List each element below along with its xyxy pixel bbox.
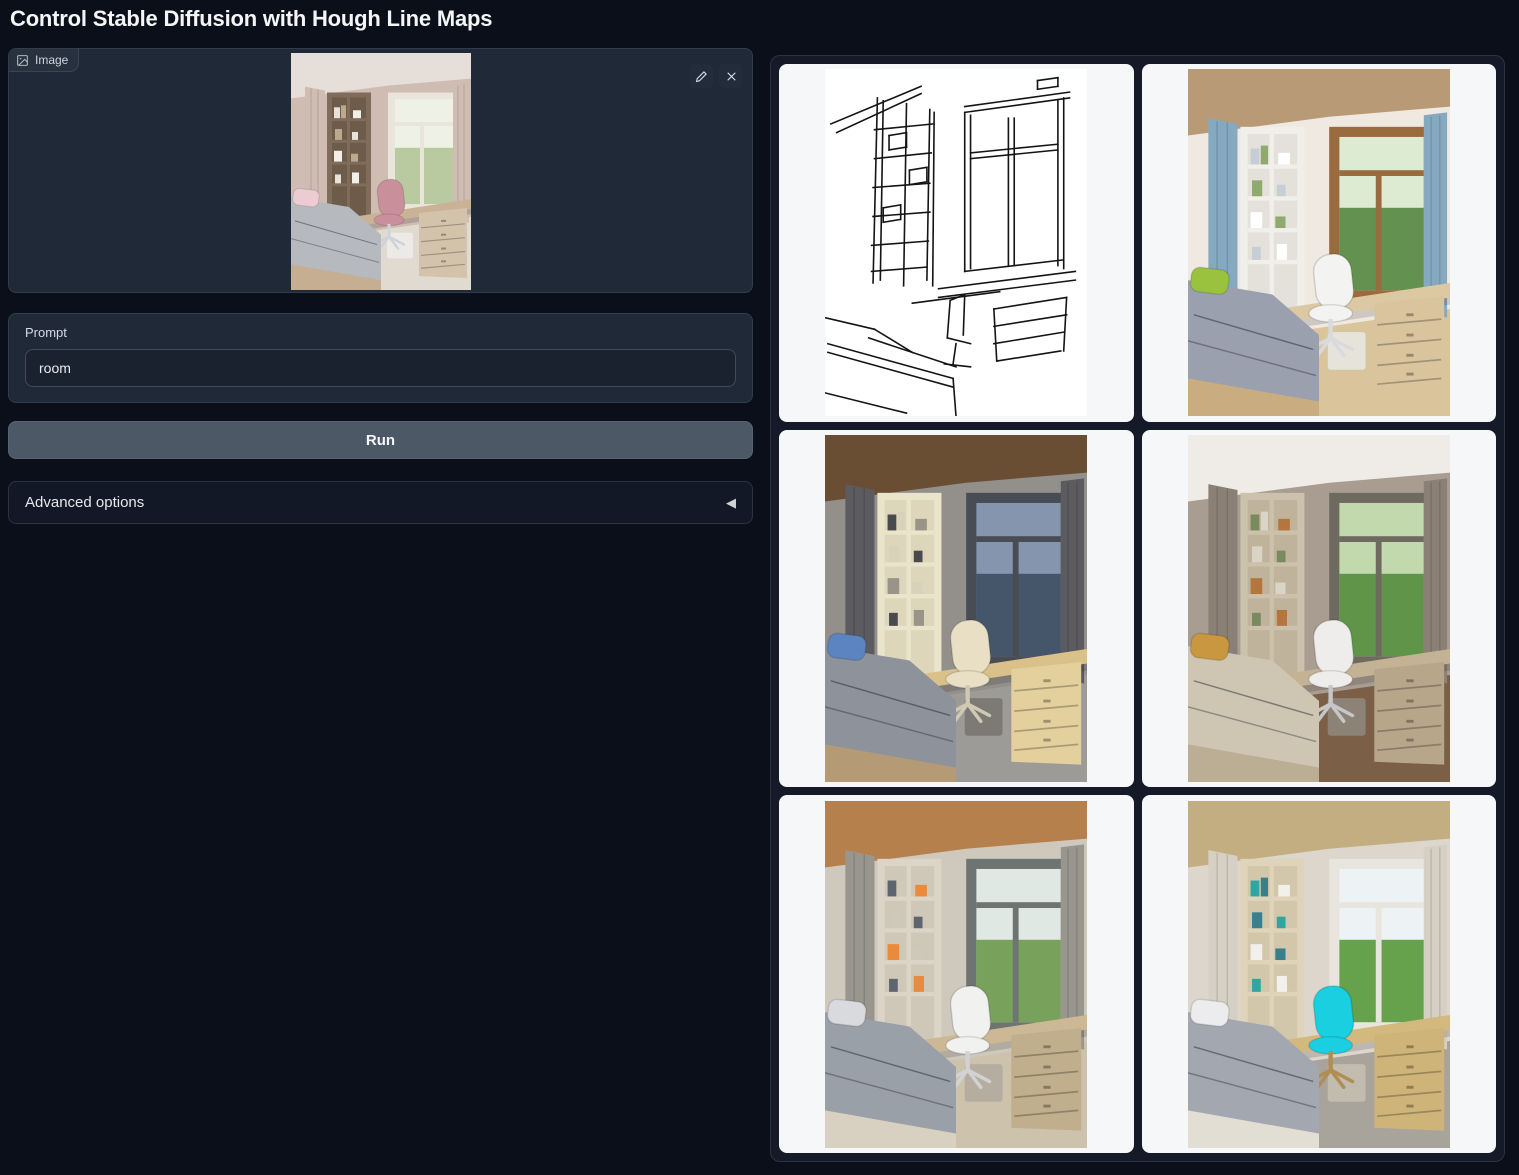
page-title: Control Stable Diffusion with Hough Line… bbox=[10, 6, 492, 32]
generated-room-image bbox=[1188, 801, 1450, 1148]
room-render-illustration bbox=[1188, 435, 1450, 782]
gallery-item-1[interactable] bbox=[779, 64, 1134, 422]
gallery-item-6[interactable] bbox=[1142, 795, 1497, 1153]
room-render-illustration bbox=[291, 53, 471, 290]
generated-room-image bbox=[1188, 435, 1450, 782]
gallery-item-4[interactable] bbox=[1142, 430, 1497, 788]
advanced-options-accordion[interactable]: Advanced options ◀ bbox=[8, 481, 753, 524]
hough-line-map-image bbox=[825, 69, 1087, 416]
advanced-options-label: Advanced options bbox=[25, 494, 144, 511]
prompt-input[interactable] bbox=[25, 349, 736, 387]
generated-room-image bbox=[1188, 69, 1450, 416]
run-button[interactable]: Run bbox=[8, 421, 753, 459]
image-component-label-text: Image bbox=[35, 53, 68, 67]
room-render-illustration bbox=[825, 435, 1087, 782]
pencil-icon bbox=[695, 70, 708, 83]
close-icon bbox=[725, 70, 738, 83]
prompt-label: Prompt bbox=[25, 325, 736, 340]
gallery-item-2[interactable] bbox=[1142, 64, 1497, 422]
input-image[interactable] bbox=[291, 53, 471, 290]
clear-image-button[interactable] bbox=[719, 64, 743, 88]
generated-room-image bbox=[825, 801, 1087, 1148]
collapse-arrow-icon: ◀ bbox=[726, 495, 736, 511]
input-image-component: Image bbox=[8, 48, 753, 293]
image-component-label: Image bbox=[9, 49, 79, 72]
output-gallery bbox=[770, 55, 1505, 1162]
prompt-block: Prompt bbox=[8, 313, 753, 403]
generated-room-image bbox=[825, 435, 1087, 782]
room-render-illustration bbox=[825, 801, 1087, 1148]
room-render-illustration bbox=[1188, 69, 1450, 416]
image-icon bbox=[16, 54, 29, 67]
gallery-item-5[interactable] bbox=[779, 795, 1134, 1153]
gallery-item-3[interactable] bbox=[779, 430, 1134, 788]
hough-line-map-illustration bbox=[825, 69, 1087, 416]
room-render-illustration bbox=[1188, 801, 1450, 1148]
edit-image-button[interactable] bbox=[689, 64, 713, 88]
